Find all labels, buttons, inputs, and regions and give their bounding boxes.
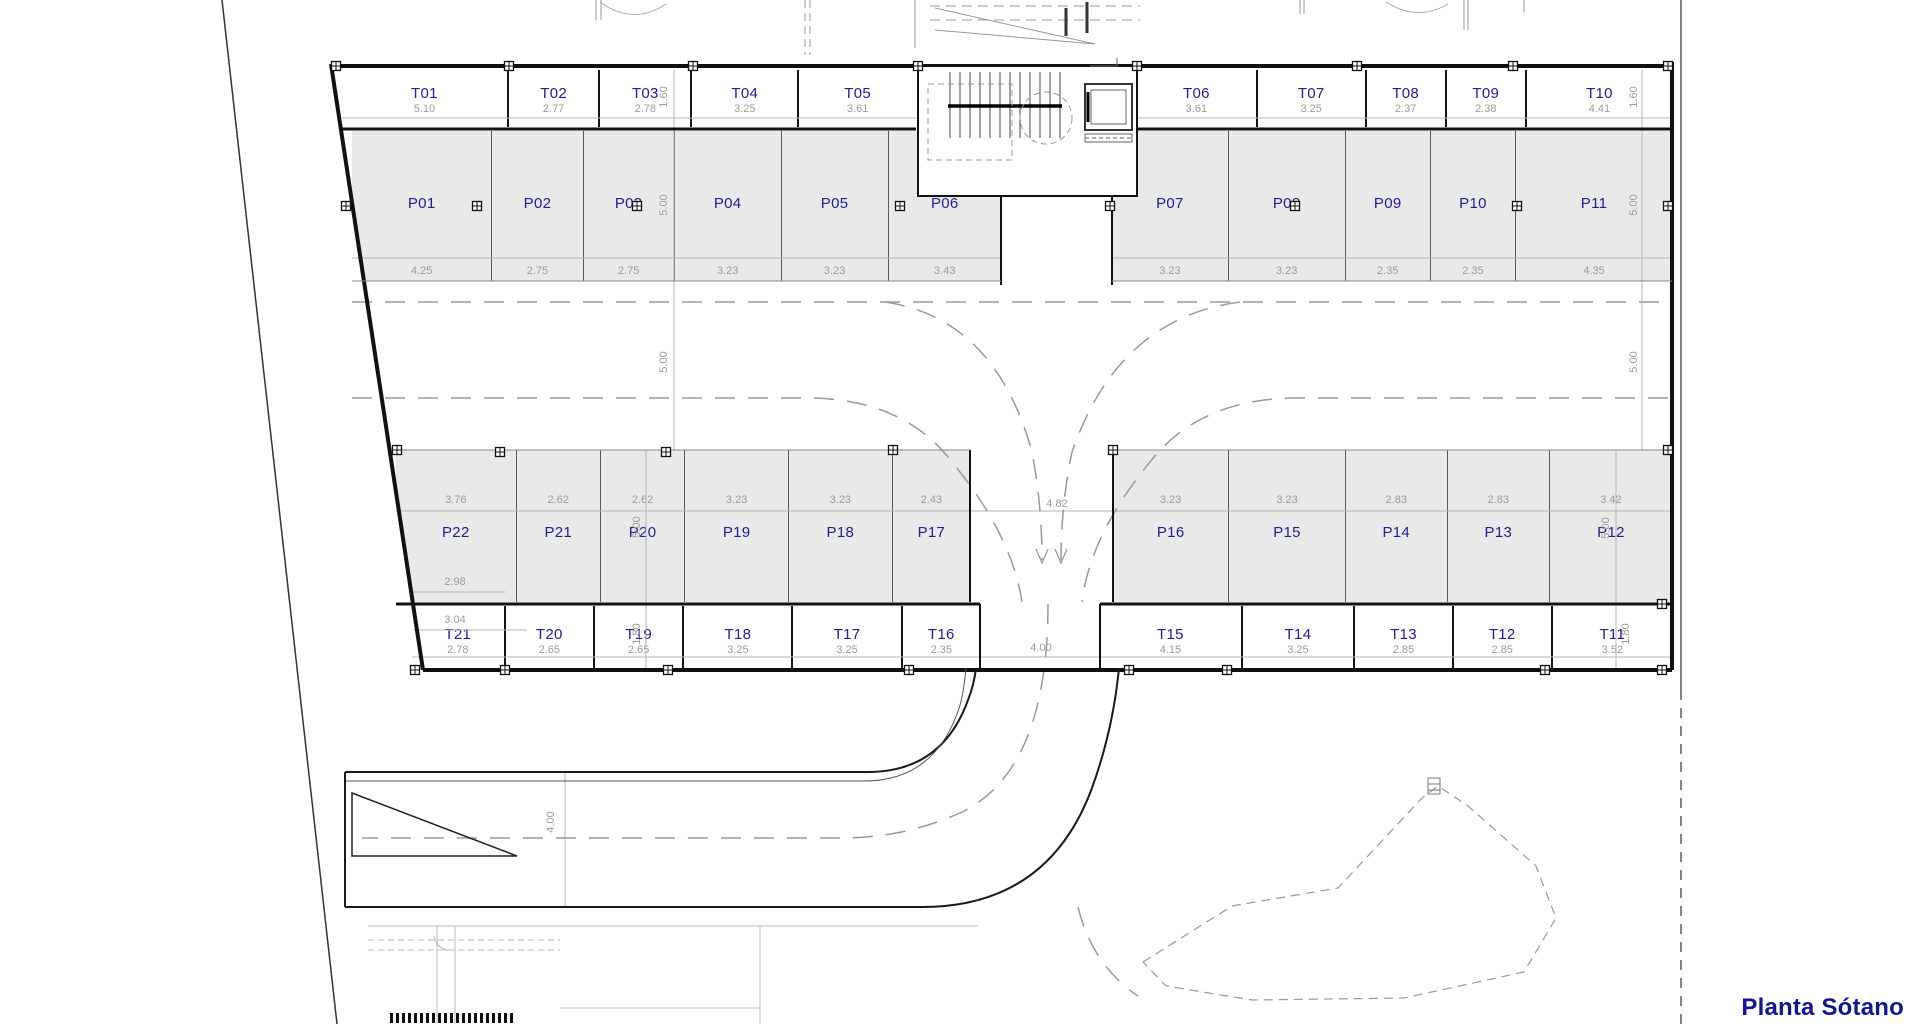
stall-id-label: P22: [396, 524, 516, 542]
stall-id-label: P07: [1112, 195, 1228, 213]
stall-dimension-label: 2.62: [517, 494, 600, 507]
top-parking-left-wing: P014.25P022.75P032.75P043.23P053.23P063.…: [352, 131, 1001, 281]
stall-dimension-label: 2.35: [931, 644, 952, 657]
storage-room-T08: T082.37: [1365, 70, 1445, 127]
dimension-label: 5.00: [631, 516, 643, 537]
parking-stall-P06: P063.43: [888, 131, 1001, 281]
dimension-label: 5.00: [658, 351, 670, 372]
stall-id-label: T12: [1489, 626, 1516, 644]
stall-id-label: T02: [540, 85, 567, 103]
storage-room-T02: T022.77: [507, 70, 599, 127]
storage-room-T10: T104.41: [1525, 70, 1672, 127]
stall-dimension-label: 2.35: [1431, 265, 1515, 278]
stall-dimension-label: 3.23: [1229, 265, 1345, 278]
stall-id-label: P01: [352, 195, 491, 213]
storage-room-T03: T032.78: [598, 70, 690, 127]
stall-id-label: T08: [1392, 85, 1419, 103]
stall-dimension-label: 3.61: [1186, 103, 1207, 116]
stall-dimension-label: 2.35: [1346, 265, 1430, 278]
stall-id-label: P11: [1516, 195, 1672, 213]
stall-dimension-label: 3.25: [727, 644, 748, 657]
storage-room-T07: T073.25: [1256, 70, 1365, 127]
parking-stall-P02: P022.75: [491, 131, 582, 281]
ramp-road: [345, 668, 1119, 907]
storage-room-T05: T053.61: [797, 70, 916, 127]
storage-room-T13: T132.85: [1353, 606, 1452, 668]
stall-id-label: P08: [1229, 195, 1345, 213]
dimension-label: 1.80: [631, 623, 643, 644]
dimension-label: 3.04: [444, 614, 465, 626]
stall-id-label: T03: [632, 85, 659, 103]
storage-room-T01: T015.10: [342, 70, 507, 127]
storage-room-T04: T043.25: [690, 70, 797, 127]
stall-id-label: P09: [1346, 195, 1430, 213]
storage-room-T16: T162.35: [901, 606, 980, 668]
top-site-linework: [596, 0, 1524, 66]
stall-dimension-label: 2.75: [584, 265, 674, 278]
stall-id-label: P04: [675, 195, 781, 213]
stall-dimension-label: 2.65: [628, 644, 649, 657]
stall-id-label: P19: [685, 524, 788, 542]
stall-id-label: T14: [1285, 626, 1312, 644]
pool-ladder-icon: [1428, 778, 1440, 794]
dimension-label: 1.60: [658, 86, 670, 107]
stall-dimension-label: 2.37: [1395, 103, 1416, 116]
parking-stall-P04: P043.23: [674, 131, 781, 281]
stall-id-label: T05: [844, 85, 871, 103]
parking-stall-P05: P053.23: [781, 131, 888, 281]
bottom-storage-left-wing: T212.78T202.65T192.65T183.25T173.25T162.…: [412, 606, 980, 668]
stall-dimension-label: 3.25: [1300, 103, 1321, 116]
stall-id-label: T17: [834, 626, 861, 644]
stall-id-label: T18: [725, 626, 752, 644]
stall-id-label: P21: [517, 524, 600, 542]
stall-dimension-label: 2.85: [1491, 644, 1512, 657]
stall-dimension-label: 5.10: [414, 103, 435, 116]
stall-dimension-label: 3.76: [396, 494, 516, 507]
stall-id-label: P10: [1431, 195, 1515, 213]
dimension-label: 4.00: [545, 811, 557, 832]
stall-id-label: P05: [782, 195, 888, 213]
ramp-slope-arrow: [352, 793, 517, 856]
dimension-label: 5.00: [1628, 194, 1640, 215]
dimension-label: 4.00: [1030, 642, 1051, 654]
stall-id-label: T15: [1157, 626, 1184, 644]
stall-dimension-label: 3.23: [789, 494, 892, 507]
parking-stall-P15: P153.23: [1228, 450, 1344, 602]
parking-stall-P13: P132.83: [1447, 450, 1549, 602]
aisle-edges: [352, 281, 1672, 450]
stall-dimension-label: 4.25: [352, 265, 491, 278]
stall-id-label: T20: [536, 626, 563, 644]
stall-id-label: T21: [444, 626, 471, 644]
stall-id-label: T04: [731, 85, 758, 103]
stall-dimension-label: 4.15: [1160, 644, 1181, 657]
stall-dimension-label: 2.65: [539, 644, 560, 657]
stall-id-label: T10: [1586, 85, 1613, 103]
storage-room-T14: T143.25: [1241, 606, 1353, 668]
storage-room-T11: T113.52: [1551, 606, 1672, 668]
bottom-storage-right-wing: T154.15T143.25T132.85T122.85T113.52: [1100, 606, 1672, 668]
stall-id-label: T07: [1298, 85, 1325, 103]
stall-dimension-label: 4.41: [1589, 103, 1610, 116]
stall-dimension-label: 3.25: [836, 644, 857, 657]
stall-dimension-label: 3.52: [1602, 644, 1623, 657]
pool-outline: [1143, 778, 1556, 1000]
stall-dimension-label: 4.35: [1516, 265, 1672, 278]
lane-arrows: [1036, 549, 1067, 563]
parking-stall-P07: P073.23: [1112, 131, 1228, 281]
stall-id-label: T01: [411, 85, 438, 103]
stall-id-label: P14: [1346, 524, 1447, 542]
stall-dimension-label: 3.42: [1550, 494, 1672, 507]
storage-room-T15: T154.15: [1100, 606, 1241, 668]
parking-stall-P14: P142.83: [1345, 450, 1447, 602]
dimension-label: 1.80: [1620, 623, 1632, 644]
stall-dimension-label: 2.85: [1393, 644, 1414, 657]
stall-id-label: T13: [1390, 626, 1417, 644]
stall-dimension-label: 2.83: [1346, 494, 1447, 507]
stall-dimension-label: 2.78: [447, 644, 468, 657]
stall-id-label: T09: [1472, 85, 1499, 103]
stall-dimension-label: 3.23: [1229, 494, 1344, 507]
parking-stall-P17: P172.43: [892, 450, 970, 602]
turning-circle: [1020, 92, 1072, 144]
stall-id-label: T16: [928, 626, 955, 644]
parking-stall-P11: P114.35: [1515, 131, 1672, 281]
stall-dimension-label: 3.43: [889, 265, 1001, 278]
stall-id-label: P15: [1229, 524, 1344, 542]
top-parking-right-wing: P073.23P083.23P092.35P102.35P114.35: [1112, 131, 1672, 281]
storage-room-T18: T183.25: [682, 606, 791, 668]
stall-id-label: T06: [1183, 85, 1210, 103]
stall-dimension-label: 2.78: [635, 103, 656, 116]
stall-id-label: P18: [789, 524, 892, 542]
parking-stall-P21: P212.62: [516, 450, 600, 602]
stall-dimension-label: 3.25: [734, 103, 755, 116]
stall-id-label: P16: [1113, 524, 1228, 542]
parking-stall-P18: P183.23: [788, 450, 892, 602]
dimension-label: 1.60: [1628, 86, 1640, 107]
storage-room-T17: T173.25: [791, 606, 900, 668]
parking-stall-P19: P193.23: [684, 450, 788, 602]
dimension-label: 5.00: [1628, 351, 1640, 372]
dimension-label: 4.82: [1046, 498, 1067, 510]
stall-dimension-label: 3.23: [782, 265, 888, 278]
top-storage-right-wing: T063.61T073.25T082.37T092.38T104.41: [1137, 70, 1672, 127]
storage-room-T12: T122.85: [1452, 606, 1551, 668]
dimension-label: 5.00: [658, 194, 670, 215]
dimension-label: 2.98: [444, 576, 465, 588]
stall-dimension-label: 3.23: [1113, 494, 1228, 507]
plan-title: Planta Sótano: [1741, 994, 1904, 1022]
stall-dimension-label: 2.62: [601, 494, 684, 507]
stall-dimension-label: 3.61: [847, 103, 868, 116]
parking-stall-P16: P163.23: [1113, 450, 1228, 602]
basement-floor-plan: T015.10T022.77T032.78T043.25T053.61T063.…: [0, 0, 1920, 1024]
ground-reference-linework: [368, 926, 978, 1024]
bottom-parking-left-wing: P223.76P212.62P202.62P193.23P183.23P172.…: [396, 450, 970, 602]
stall-id-label: P02: [492, 195, 582, 213]
stall-dimension-label: 2.43: [893, 494, 970, 507]
top-storage-left-wing: T015.10T022.77T032.78T043.25T053.61: [342, 70, 916, 127]
parking-stall-P10: P102.35: [1430, 131, 1515, 281]
stall-dimension-label: 3.25: [1287, 644, 1308, 657]
stall-id-label: P17: [893, 524, 970, 542]
storage-room-T06: T063.61: [1137, 70, 1256, 127]
storage-room-T20: T202.65: [504, 606, 593, 668]
stall-id-label: P06: [889, 195, 1001, 213]
dimension-label: 5.00: [1600, 517, 1612, 538]
stall-dimension-label: 2.77: [543, 103, 564, 116]
bottom-parking-right-wing: P163.23P153.23P142.83P132.83P123.42: [1113, 450, 1672, 602]
stall-dimension-label: 2.38: [1475, 103, 1496, 116]
stall-dimension-label: 3.23: [675, 265, 781, 278]
parking-stall-P08: P083.23: [1228, 131, 1345, 281]
storage-room-T09: T092.38: [1445, 70, 1525, 127]
stall-dimension-label: 2.75: [492, 265, 582, 278]
parking-stall-P09: P092.35: [1345, 131, 1430, 281]
stall-id-label: P13: [1448, 524, 1549, 542]
parking-stall-P01: P014.25: [352, 131, 491, 281]
stall-dimension-label: 3.23: [1112, 265, 1228, 278]
stall-dimension-label: 3.23: [685, 494, 788, 507]
stall-dimension-label: 2.83: [1448, 494, 1549, 507]
